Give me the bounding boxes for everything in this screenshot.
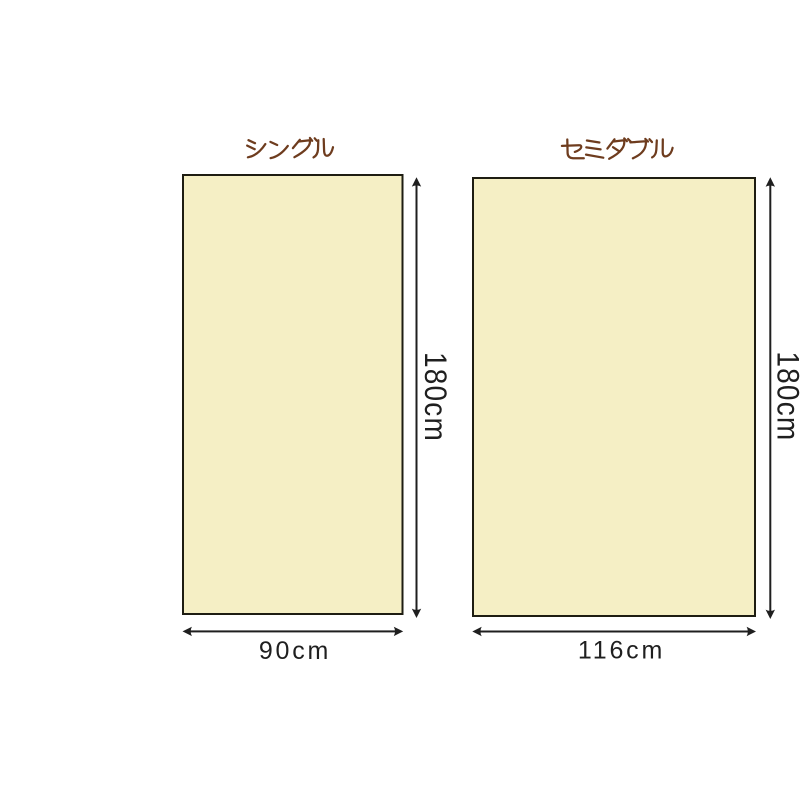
svg-text:90cm: 90cm [259, 637, 331, 665]
svg-text:180cm: 180cm [418, 352, 453, 442]
svg-text:180cm: 180cm [770, 351, 800, 441]
svg-text:116cm: 116cm [578, 637, 665, 665]
